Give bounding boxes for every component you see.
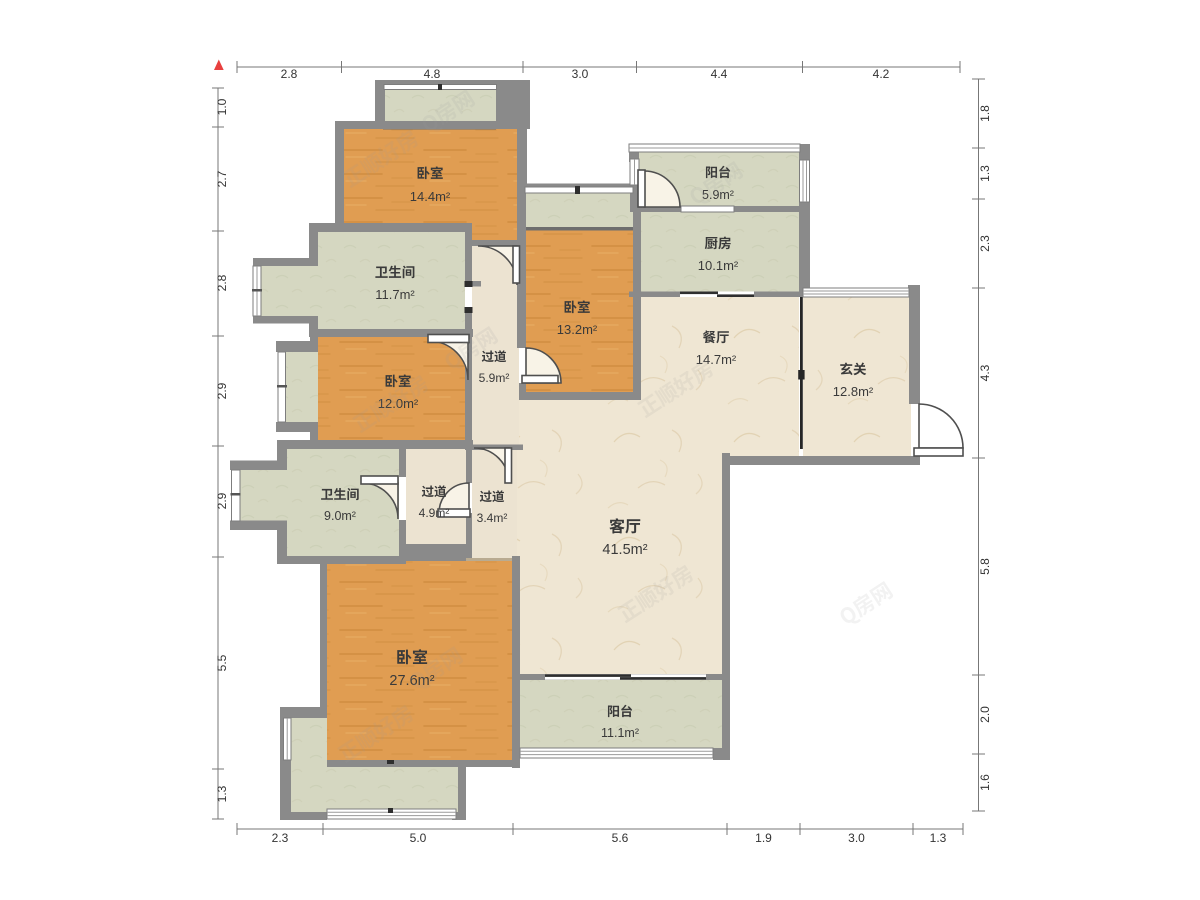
svg-text:9.0m²: 9.0m²	[324, 509, 356, 523]
svg-text:5.9m²: 5.9m²	[702, 188, 734, 202]
svg-text:4.9m²: 4.9m²	[419, 506, 450, 520]
svg-text:5.8: 5.8	[978, 558, 992, 575]
svg-text:4.2: 4.2	[873, 67, 890, 81]
svg-text:1.3: 1.3	[930, 831, 947, 845]
svg-text:3.4m²: 3.4m²	[477, 511, 508, 525]
svg-text:2.9: 2.9	[215, 492, 229, 509]
svg-text:4.4: 4.4	[711, 67, 728, 81]
svg-text:2.3: 2.3	[978, 235, 992, 252]
svg-text:11.7m²: 11.7m²	[375, 287, 415, 302]
svg-text:1.9: 1.9	[755, 831, 772, 845]
svg-text:4.3: 4.3	[978, 364, 992, 381]
svg-text:1.8: 1.8	[978, 105, 992, 122]
svg-text:41.5m²: 41.5m²	[602, 542, 647, 558]
svg-text:2.3: 2.3	[272, 831, 289, 845]
svg-text:1.3: 1.3	[978, 165, 992, 182]
svg-text:14.4m²: 14.4m²	[410, 189, 451, 204]
svg-text:4.8: 4.8	[424, 67, 441, 81]
svg-text:2.9: 2.9	[215, 382, 229, 399]
svg-text:11.1m²: 11.1m²	[601, 726, 639, 740]
svg-text:1.3: 1.3	[215, 785, 229, 802]
svg-text:5.5: 5.5	[215, 654, 229, 671]
svg-text:2.8: 2.8	[215, 274, 229, 291]
svg-text:5.6: 5.6	[612, 831, 629, 845]
svg-text:13.2m²: 13.2m²	[557, 322, 598, 337]
svg-text:12.8m²: 12.8m²	[833, 384, 874, 399]
svg-text:3.0: 3.0	[848, 831, 865, 845]
svg-text:3.0: 3.0	[572, 67, 589, 81]
svg-text:2.7: 2.7	[215, 170, 229, 187]
svg-text:2.0: 2.0	[978, 706, 992, 723]
svg-text:1.6: 1.6	[978, 774, 992, 791]
svg-text:5.9m²: 5.9m²	[479, 371, 510, 385]
svg-text:5.0: 5.0	[410, 831, 427, 845]
svg-text:1.0: 1.0	[215, 98, 229, 115]
svg-text:2.8: 2.8	[281, 67, 298, 81]
svg-text:10.1m²: 10.1m²	[698, 258, 739, 273]
svg-text:14.7m²: 14.7m²	[696, 352, 737, 367]
